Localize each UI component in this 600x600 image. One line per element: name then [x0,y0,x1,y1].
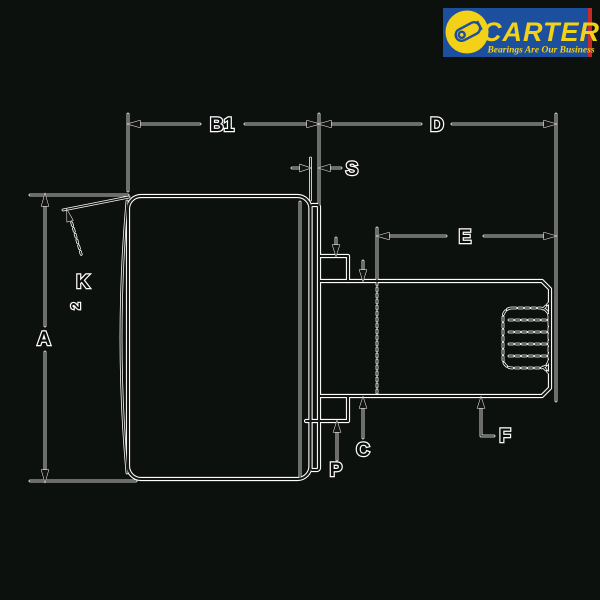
dim-label-d: D [430,115,444,136]
carter-logo: CARTER Bearings Are Our Business [443,8,600,57]
arrow-s-right [319,165,330,172]
dim-label-k: K [76,272,90,293]
dim-label-e: E [459,227,472,248]
arrow-d-right [544,121,556,128]
dim-label-c: C [356,440,370,461]
dim-label-b1: B1 [210,115,235,136]
arrow-f [478,397,485,408]
drawing-halo-layer [30,114,556,481]
screenshot-root: { "logo": { "brand": "CARTER", "tagline"… [0,0,600,600]
dim-label-p: P [330,460,343,481]
arrow-d-left [319,121,331,128]
arrow-e-left [377,233,389,240]
arrow-k [67,210,73,222]
arrow-c-bottom [360,397,367,408]
dimension-labels: A B1 D S E K 2 C P F [37,115,511,481]
dim-label-s: S [346,159,359,180]
arrow-s-left [300,165,311,172]
technical-drawing-svg: A B1 D S E K 2 C P F CARTER Bearings Are… [0,0,600,600]
arrow-e-right [544,233,556,240]
logo-brand-name: CARTER [482,17,600,47]
dim-label-k-sub: 2 [68,302,83,309]
arrow-b1-right [307,121,319,128]
logo-tagline: Bearings Are Our Business [486,46,594,56]
dim-label-a: A [37,329,51,350]
dim-label-f: F [499,426,511,447]
arrow-b1-left [128,121,140,128]
